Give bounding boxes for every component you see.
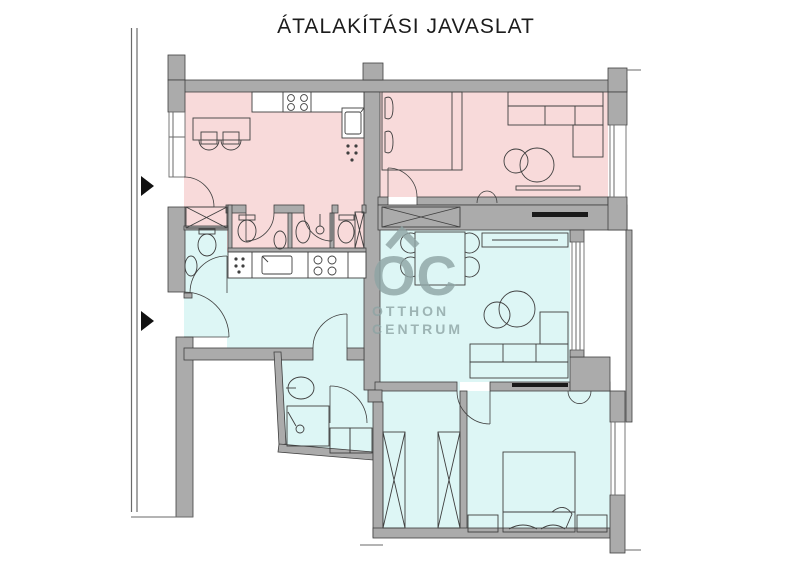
wall-hall-stub [368, 390, 382, 402]
wall-bottom [373, 528, 610, 538]
wall-bath-part-1 [228, 205, 232, 252]
window-kitchen [169, 112, 185, 177]
sliding-door-threshold [532, 212, 588, 217]
room-bedroom-new [467, 391, 610, 532]
wall-bath-south-line [228, 248, 366, 252]
wall-bedroom2-east-bot [610, 495, 625, 553]
wall-se-corner-block [570, 357, 610, 391]
wall-bath-part-2 [288, 213, 292, 252]
wall-hall-south-stub [347, 348, 364, 360]
wall-left-lower [176, 337, 193, 517]
wall-left-2 [168, 207, 185, 292]
wall-lr-window-stub-bot [570, 350, 584, 357]
watermark-letters: OC [372, 244, 458, 307]
balcony-edge [626, 230, 632, 422]
kitchenette-furniture [228, 252, 366, 278]
watermark-logo: OC OTTHON CENTRUM [372, 231, 463, 337]
wall-living-south-left [375, 382, 457, 391]
floor-plan-drawing: OC OTTHON CENTRUM ÁTALAKÍTÁSI JAVASLAT [0, 0, 800, 565]
wall-wc-south-stub [184, 293, 192, 298]
wall-dressing-east [460, 391, 467, 532]
threshold-living-bedroom [512, 383, 568, 387]
watermark-line2: CENTRUM [372, 321, 463, 337]
room-wc [184, 228, 227, 337]
stove-icon [283, 92, 311, 112]
wall-top-left-stub [168, 55, 185, 80]
room-dressing-corridor [383, 391, 460, 532]
kitchen-sink-icon [342, 108, 364, 138]
wall-bedroom2-east-top [610, 391, 625, 422]
wall-bathstrip-2 [274, 205, 304, 213]
window-bedroom-old [610, 125, 626, 197]
wall-chimney-stub [363, 63, 383, 80]
wall-dressing-west [373, 402, 383, 537]
wall-hall-south [184, 348, 313, 360]
window-bedroom-new [611, 422, 625, 495]
watermark-line1: OTTHON [372, 303, 449, 319]
floor-plan-page: OC OTTHON CENTRUM ÁTALAKÍTÁSI JAVASLAT [0, 0, 800, 565]
entrance-arrow-icon-top [141, 176, 154, 196]
window-living [572, 242, 584, 350]
room-bedroom-living-old [380, 92, 608, 197]
wall-bedroom-door-right [417, 197, 608, 205]
wall-top [184, 80, 627, 92]
gallery-line [132, 28, 155, 512]
wall-bathstrip-3 [332, 205, 338, 213]
wall-right-upper [608, 92, 627, 125]
entrance-arrow-icon-bottom [141, 311, 154, 331]
wall-right-mid [608, 197, 627, 230]
page-title: ÁTALAKÍTÁSI JAVASLAT [277, 15, 535, 38]
wall-center-vertical [364, 92, 380, 390]
wall-top-right-stub [608, 68, 627, 92]
wall-left-1 [168, 80, 185, 112]
wall-lr-window-stub-top [570, 230, 584, 242]
wall-strip-under-bedroom [378, 205, 627, 230]
wall-bedroom-door-left [378, 197, 388, 205]
kitchenette-counter [228, 252, 366, 278]
